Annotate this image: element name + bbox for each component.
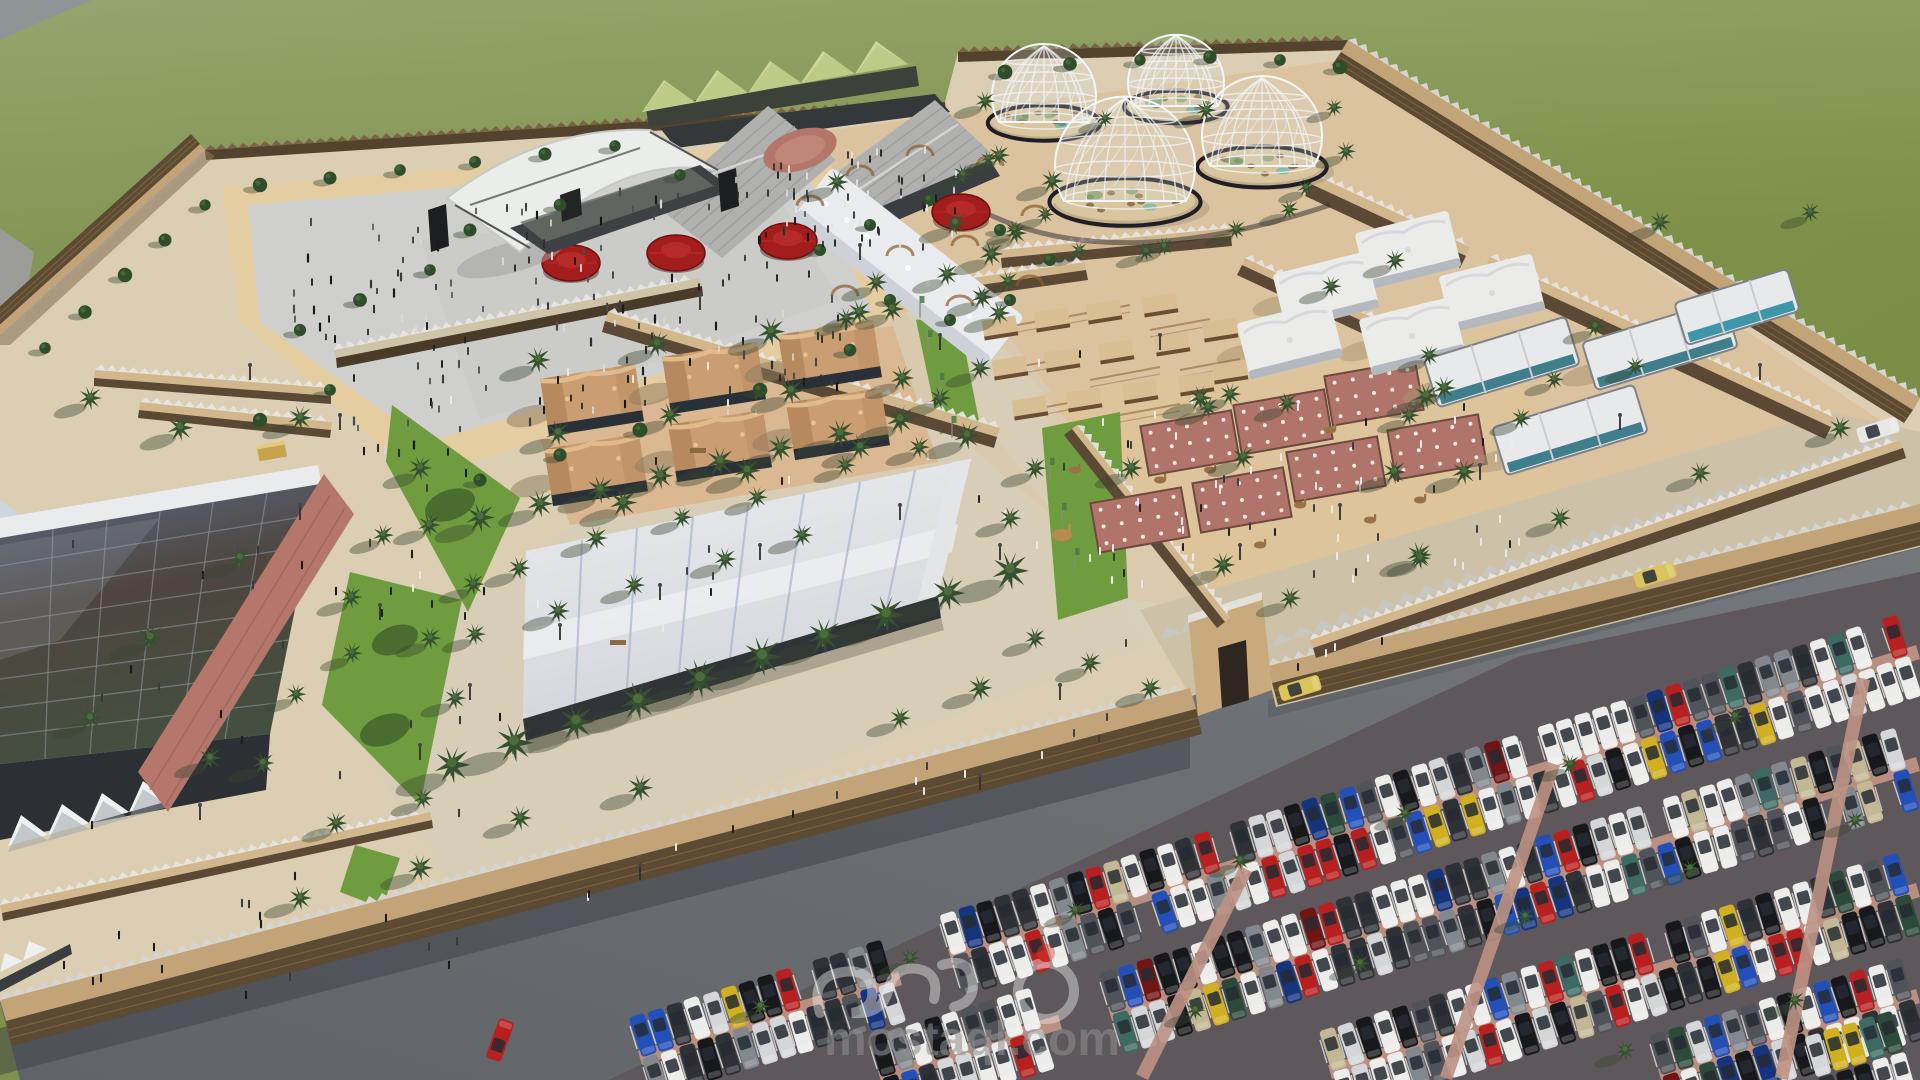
svg-text:mostaql.com: mostaql.com — [824, 1013, 1120, 1066]
